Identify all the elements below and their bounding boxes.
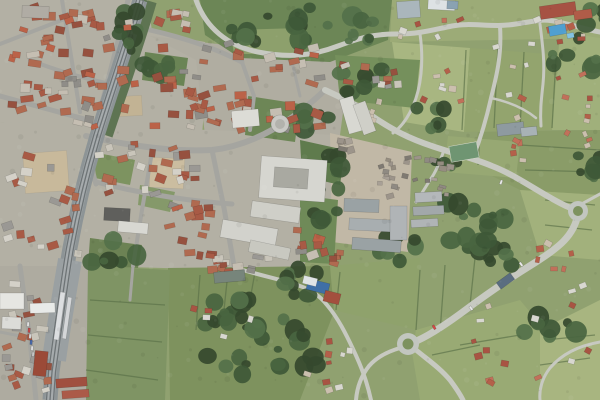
construction-dark-block — [104, 207, 131, 221]
red-row-bottom-2 — [62, 389, 89, 399]
tree-clump — [234, 365, 252, 383]
white-complex-courtyard — [273, 167, 308, 189]
tree-clump — [476, 232, 497, 249]
factory-blue — [447, 1, 458, 10]
gray-tower — [390, 206, 407, 240]
gray-row-1 — [344, 198, 379, 212]
roundabout-east-island — [573, 206, 583, 216]
station-canopy — [30, 303, 55, 314]
tree-clump — [235, 310, 248, 324]
vehicle — [32, 352, 35, 357]
tree-clump — [274, 346, 282, 353]
field — [552, 32, 600, 130]
tree-clump — [433, 120, 441, 130]
station-depot-red — [33, 350, 49, 376]
vehicle — [28, 328, 31, 333]
tree-clump — [236, 28, 255, 46]
tree-clump — [270, 358, 286, 371]
roundabout-south-island — [403, 339, 414, 350]
civic-white-building — [231, 109, 259, 128]
tree-clump — [410, 102, 423, 115]
tree-clump — [498, 248, 513, 261]
aerial-photo — [0, 0, 600, 400]
tree-clump — [162, 61, 175, 73]
vehicle — [29, 334, 32, 339]
factory-gray — [396, 0, 420, 19]
tree-clump — [100, 258, 109, 265]
gray-row-4 — [415, 191, 442, 202]
tree-clump — [467, 203, 481, 218]
tree-clump — [134, 56, 154, 72]
tree-clump — [104, 231, 122, 250]
shed-gray-2 — [521, 126, 538, 137]
tree-clump — [127, 244, 146, 266]
vehicle — [30, 340, 33, 345]
swimming-pool-small — [567, 32, 575, 38]
tree-clump — [408, 234, 421, 246]
tree-clump — [303, 2, 315, 13]
tree-clump — [573, 151, 584, 160]
construction-white-block — [118, 221, 149, 235]
tree-clump — [198, 348, 217, 364]
tree-clump — [276, 276, 294, 290]
tree-clump — [330, 157, 351, 178]
tree-clump — [263, 13, 272, 20]
retail-white-1 — [0, 293, 24, 309]
vehicle — [31, 346, 34, 351]
tree-clump — [565, 321, 587, 343]
flat-gray-roof — [22, 6, 49, 19]
tree-clump — [489, 212, 497, 219]
gray-row-6 — [411, 218, 438, 227]
tree-clump — [220, 308, 230, 316]
tree-clump — [82, 253, 101, 271]
rotunda-building-center — [275, 119, 285, 129]
red-row-bottom-1 — [56, 377, 88, 388]
tree-clump — [483, 254, 494, 263]
tree-clump — [296, 328, 310, 342]
field — [464, 48, 560, 132]
tree-clump — [356, 79, 373, 95]
tree-clump — [440, 231, 461, 249]
tree-clump — [311, 210, 331, 230]
shed-gray-1 — [496, 122, 524, 137]
tree-clump — [323, 21, 333, 30]
map-canvas — [0, 0, 600, 400]
tree-clump — [436, 101, 452, 118]
gray-row-5 — [413, 205, 444, 216]
tree-clump — [302, 348, 323, 366]
tree-clump — [331, 181, 345, 196]
tree-clump — [576, 168, 585, 176]
tree-clump — [331, 206, 343, 216]
tree-clump — [364, 34, 374, 44]
vehicle — [27, 322, 30, 327]
tree-clump — [230, 291, 248, 309]
gray-row-2 — [349, 218, 395, 232]
tree-clump — [218, 360, 233, 374]
tree-clump — [448, 193, 468, 216]
retail-white-2 — [2, 317, 21, 330]
